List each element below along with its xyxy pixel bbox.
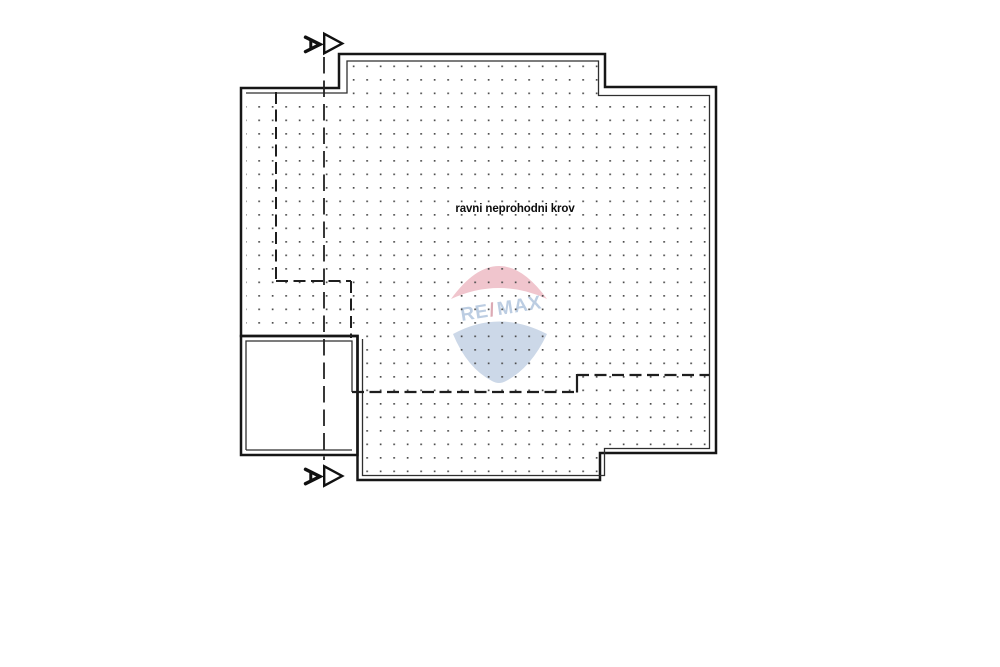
svg-text:ravni neprohodni krov: ravni neprohodni krov — [455, 203, 575, 215]
